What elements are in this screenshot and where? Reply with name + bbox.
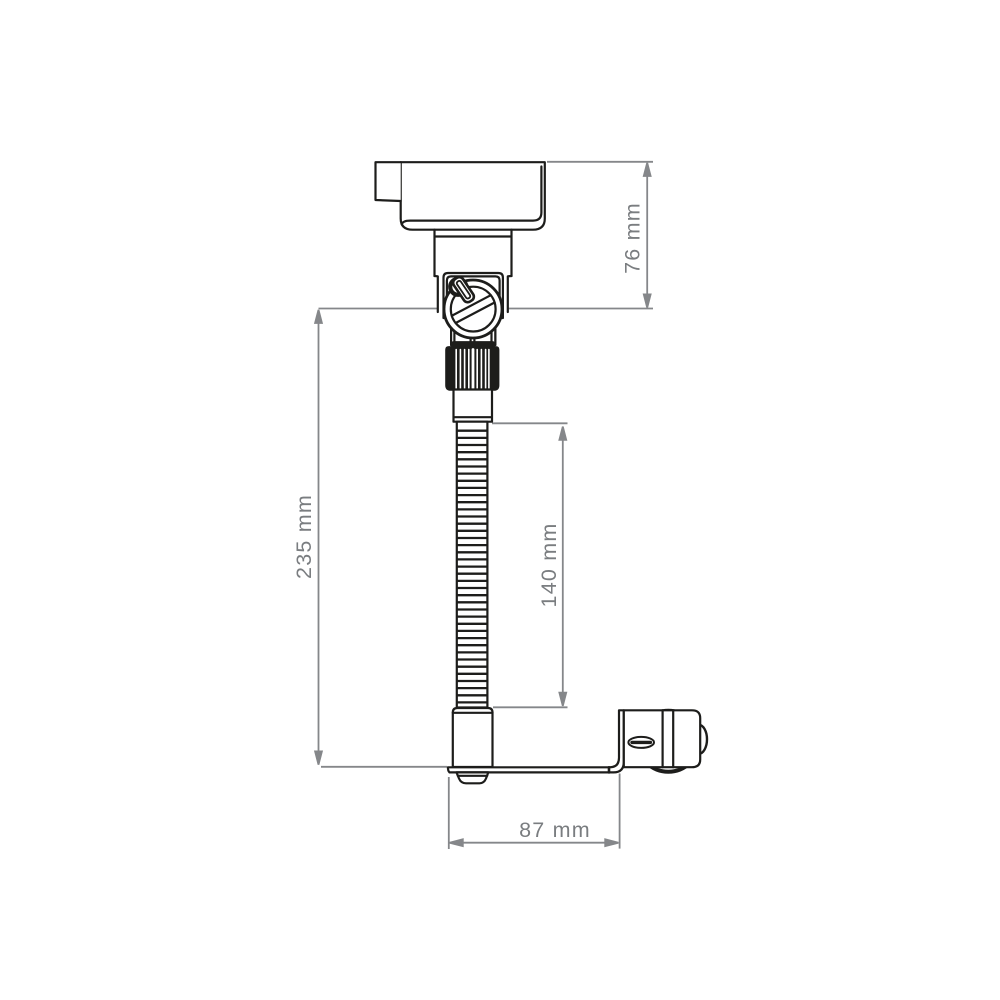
svg-text:235 mm: 235 mm <box>292 494 316 579</box>
svg-text:76 mm: 76 mm <box>621 202 645 274</box>
svg-text:87 mm: 87 mm <box>519 818 591 842</box>
svg-text:140 mm: 140 mm <box>537 523 561 608</box>
